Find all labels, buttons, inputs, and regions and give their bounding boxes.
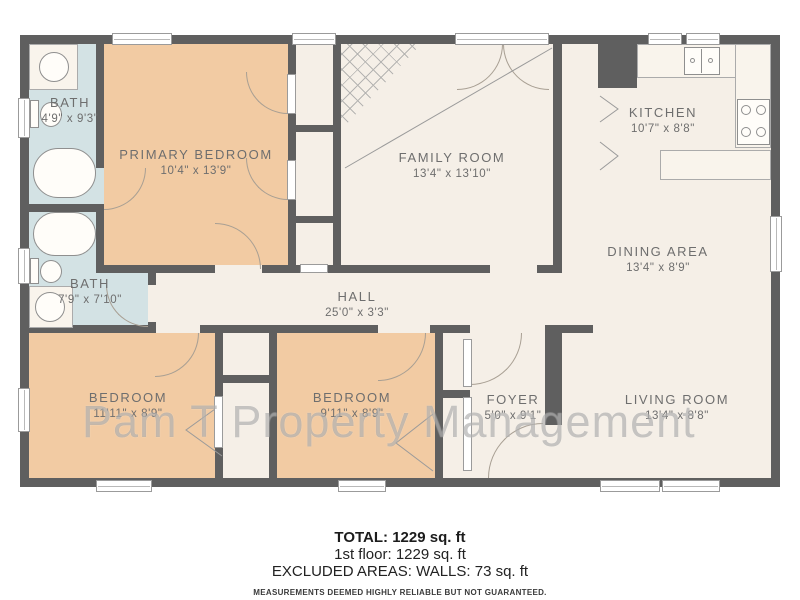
room-name: HALL <box>325 289 389 304</box>
window-living-bottom-2 <box>662 480 720 492</box>
window-living-bottom-1 <box>600 480 660 492</box>
room-name: PRIMARY BEDROOM <box>119 147 273 162</box>
room-label-dining-area: DINING AREA 13'4" x 8'9" <box>607 244 708 274</box>
room-dims: 10'7" x 8'8" <box>629 123 697 135</box>
room-name: DINING AREA <box>607 244 708 259</box>
closet-door-panel-primary-1 <box>287 74 296 114</box>
room-name: FAMILY ROOM <box>399 150 506 165</box>
room-label-primary-bedroom: PRIMARY BEDROOM 10'4" x 13'9" <box>119 147 273 177</box>
window-family-doors-top <box>455 33 549 45</box>
window-kitchen-top-2 <box>686 33 720 45</box>
room-name: BATH <box>42 95 99 110</box>
room-dims: 13'4" x 13'10" <box>399 168 506 180</box>
room-dims: 10'4" x 13'9" <box>119 165 273 177</box>
first-floor-area: 1st floor: 1229 sq. ft <box>0 546 800 563</box>
window-bath2-left <box>18 248 30 284</box>
closet-door-panel-hall <box>300 264 328 273</box>
floor-plan: BATH 4'9" x 9'3" PRIMARY BEDROOM 10'4" x… <box>0 0 800 487</box>
window-bath1-left <box>18 98 30 138</box>
window-dining-right <box>770 216 782 272</box>
closet-door-panel-foyer-1 <box>463 339 472 387</box>
total-area: TOTAL: 1229 sq. ft <box>0 529 800 546</box>
excluded-area: EXCLUDED AREAS: WALLS: 73 sq. ft <box>0 563 800 580</box>
room-label-hall: HALL 25'0" x 3'3" <box>325 289 389 319</box>
disclaimer: MEASUREMENTS DEEMED HIGHLY RELIABLE BUT … <box>0 588 800 597</box>
room-label-bath-2: BATH 7'9" x 7'10" <box>58 276 122 306</box>
room-label-bath-1: BATH 4'9" x 9'3" <box>42 95 99 125</box>
window-kitchen-top-1 <box>648 33 682 45</box>
watermark: Pam T Property Management <box>82 396 696 448</box>
closet-door-panel-primary-2 <box>287 160 296 200</box>
room-label-family-room: FAMILY ROOM 13'4" x 13'10" <box>399 150 506 180</box>
window-bedroom-mid-bottom <box>338 480 386 492</box>
room-name: BATH <box>58 276 122 291</box>
room-dims: 7'9" x 7'10" <box>58 294 122 306</box>
room-dims: 4'9" x 9'3" <box>42 113 99 125</box>
window-primary-top <box>112 33 172 45</box>
window-bedroom-left-bottom <box>96 480 152 492</box>
room-label-kitchen: KITCHEN 10'7" x 8'8" <box>629 105 697 135</box>
room-name: KITCHEN <box>629 105 697 120</box>
room-dims: 25'0" x 3'3" <box>325 307 389 319</box>
window-closet-top <box>292 33 336 45</box>
room-dims: 13'4" x 8'9" <box>607 262 708 274</box>
window-bedroom-left-wall <box>18 388 30 432</box>
area-summary: TOTAL: 1229 sq. ft 1st floor: 1229 sq. f… <box>0 529 800 597</box>
